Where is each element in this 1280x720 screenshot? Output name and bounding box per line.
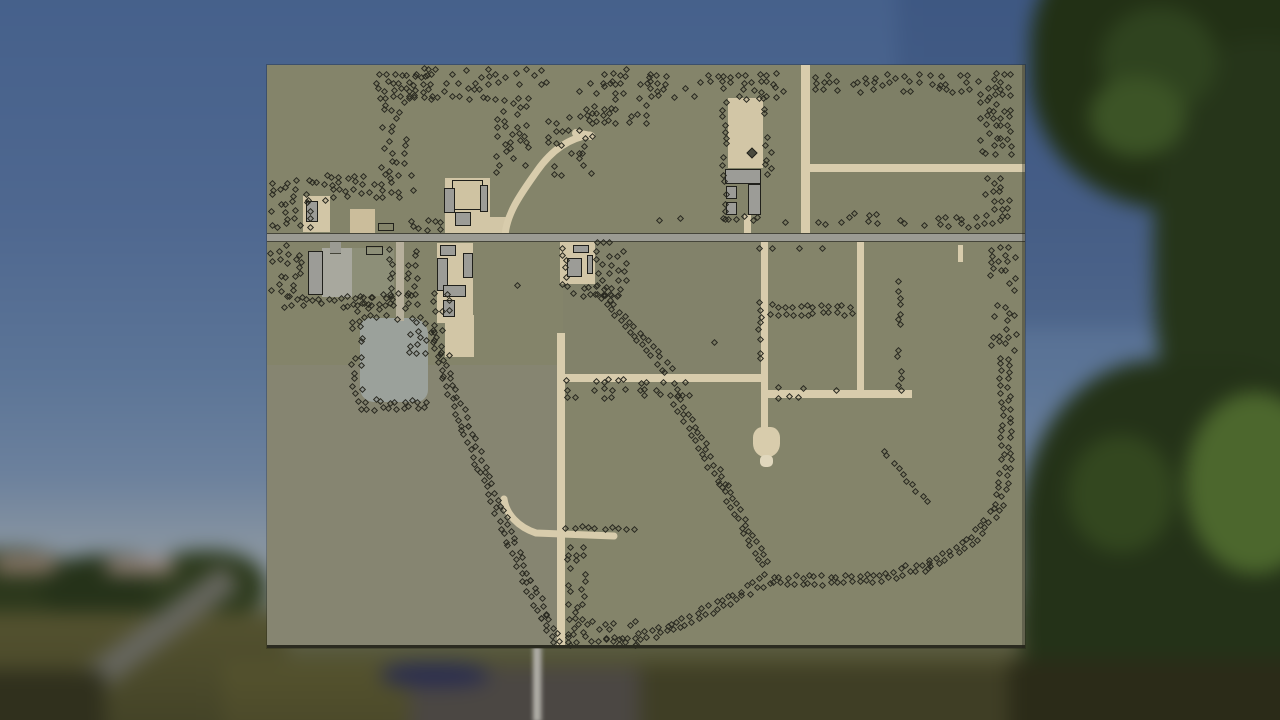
tree-marker (740, 86, 747, 93)
tree-marker (393, 159, 400, 166)
tree-marker (738, 525, 745, 532)
tree-marker (566, 616, 573, 623)
tree-marker (902, 562, 909, 569)
building (587, 255, 593, 274)
tree-marker (643, 102, 650, 109)
tree-marker (603, 636, 610, 643)
tree-marker (484, 95, 491, 102)
tree-marker (421, 94, 428, 101)
tree-marker (344, 293, 351, 300)
tree-marker (414, 275, 421, 282)
tree-marker (344, 193, 351, 200)
tree-marker (623, 66, 630, 73)
tree-marker (306, 208, 313, 215)
game-map-panel[interactable] (267, 65, 1025, 648)
tree-marker (575, 127, 582, 134)
tree-marker (671, 379, 678, 386)
tree-marker (413, 319, 420, 326)
tree-marker (822, 220, 829, 227)
tree-marker (945, 223, 952, 230)
farm-yard (350, 209, 375, 234)
tree-marker (387, 400, 394, 407)
tree-marker (866, 211, 873, 218)
tree-marker (567, 544, 574, 551)
tree-marker (678, 615, 685, 622)
tree-marker (403, 85, 410, 92)
tree-marker (898, 368, 905, 375)
tree-marker (988, 259, 995, 266)
tree-marker (593, 283, 600, 290)
tree-marker (1006, 197, 1013, 204)
tree-marker (647, 352, 654, 359)
tree-marker (750, 217, 757, 224)
tree-marker (679, 392, 686, 399)
tree-marker (511, 535, 518, 542)
tree-marker (348, 383, 355, 390)
tree-marker (488, 480, 495, 487)
tree-marker (949, 89, 956, 96)
tree-marker (637, 330, 644, 337)
tree-marker (799, 581, 806, 588)
tree-marker (322, 197, 329, 204)
tree-marker (330, 194, 337, 201)
tree-marker (382, 302, 389, 309)
tree-marker (429, 93, 436, 100)
tree-marker (777, 579, 784, 586)
tree-marker (1005, 280, 1012, 287)
tree-marker (565, 552, 572, 559)
tree-marker (641, 385, 648, 392)
tree-marker (494, 133, 501, 140)
tree-marker (821, 79, 828, 86)
tree-marker (348, 361, 355, 368)
tree-marker (919, 562, 926, 569)
tree-marker (612, 119, 619, 126)
tree-marker (480, 94, 487, 101)
tree-marker (851, 210, 858, 217)
tree-marker (469, 431, 476, 438)
tree-marker (818, 572, 825, 579)
tree-marker (387, 175, 394, 182)
tree-marker (660, 86, 667, 93)
tree-marker (550, 625, 557, 632)
tree-marker (480, 476, 487, 483)
tree-marker (591, 386, 598, 393)
tree-marker (758, 89, 765, 96)
tree-marker (406, 79, 413, 86)
tree-marker (912, 488, 919, 495)
tree-marker (1003, 317, 1010, 324)
tree-marker (293, 177, 300, 184)
tree-marker (611, 634, 618, 641)
tree-marker (1005, 396, 1012, 403)
tree-marker (909, 481, 916, 488)
tree-marker (644, 80, 651, 87)
building (308, 251, 323, 295)
tree-marker (421, 65, 428, 72)
tree-marker (356, 318, 363, 325)
tree-marker (735, 72, 742, 79)
tree-marker (772, 84, 779, 91)
tree-marker (654, 361, 661, 368)
tree-marker (358, 354, 365, 361)
tree-marker (695, 615, 702, 622)
tree-marker (979, 529, 986, 536)
building (452, 180, 483, 210)
tree-marker (825, 72, 832, 79)
tree-marker (743, 96, 750, 103)
tree-marker (655, 348, 662, 355)
tree-marker (986, 107, 993, 114)
tree-marker (607, 290, 614, 297)
tree-marker (994, 135, 1001, 142)
tree-marker (620, 376, 627, 383)
tree-marker (990, 108, 997, 115)
tree-marker (380, 291, 387, 298)
tree-marker (632, 618, 639, 625)
tree-marker (953, 544, 960, 551)
building (726, 186, 737, 199)
tree-marker (593, 248, 600, 255)
farm-yard (445, 315, 474, 357)
field-road (857, 241, 864, 395)
tree-marker (879, 82, 886, 89)
tree-marker (997, 79, 1004, 86)
tree-marker (455, 80, 462, 87)
tree-marker (278, 287, 285, 294)
tree-marker (366, 189, 373, 196)
building (437, 258, 448, 291)
tree-marker (1007, 107, 1014, 114)
tree-marker (700, 455, 707, 462)
tree-marker (989, 220, 996, 227)
tree-marker (580, 161, 587, 168)
farm-yard (728, 98, 763, 168)
tree-marker (421, 320, 428, 327)
tree-marker (565, 601, 572, 608)
tree-marker (705, 72, 712, 79)
tree-marker (373, 396, 380, 403)
tree-marker (361, 314, 368, 321)
tree-marker (722, 488, 729, 495)
tree-marker (408, 218, 415, 225)
tree-marker (511, 539, 518, 546)
tree-marker (1006, 369, 1013, 376)
tree-marker (580, 544, 587, 551)
tree-marker (437, 349, 444, 356)
tree-marker (457, 400, 464, 407)
tree-marker (378, 187, 385, 194)
tree-marker (714, 606, 721, 613)
tree-marker (486, 473, 493, 480)
tree-marker (478, 457, 485, 464)
tree-marker (591, 525, 598, 532)
tree-marker (340, 304, 347, 311)
tree-marker (733, 596, 740, 603)
tree-marker (756, 299, 763, 306)
tree-marker (293, 256, 300, 263)
tree-marker (421, 350, 428, 357)
tree-marker (485, 491, 492, 498)
tree-marker (916, 79, 923, 86)
tree-marker (523, 588, 530, 595)
tree-marker (270, 187, 277, 194)
tree-marker (451, 411, 458, 418)
tree-marker (661, 369, 668, 376)
tree-marker (684, 411, 691, 418)
tree-marker (655, 92, 662, 99)
tree-marker (502, 123, 509, 130)
tree-marker (915, 71, 922, 78)
tree-marker (600, 80, 607, 87)
tree-marker (906, 78, 913, 85)
tree-marker (977, 115, 984, 122)
tree-marker (648, 93, 655, 100)
tree-marker (388, 158, 395, 165)
tree-marker (528, 593, 535, 600)
tree-marker (292, 186, 299, 193)
tree-marker (723, 99, 730, 106)
tree-marker (358, 362, 365, 369)
tree-marker (376, 71, 383, 78)
tree-marker (405, 262, 412, 269)
tree-marker (752, 550, 759, 557)
tree-marker (815, 219, 822, 226)
tree-marker (539, 595, 546, 602)
tree-marker (578, 586, 585, 593)
tree-marker (943, 86, 950, 93)
tree-marker (387, 291, 394, 298)
tree-marker (292, 273, 299, 280)
tree-marker (349, 319, 356, 326)
tree-marker (405, 290, 412, 297)
tree-marker (707, 453, 714, 460)
tree-marker (413, 71, 420, 78)
tree-marker (723, 135, 730, 142)
tree-marker (388, 285, 395, 292)
tree-marker (947, 552, 954, 559)
tree-marker (990, 188, 997, 195)
tree-marker (775, 395, 782, 402)
tree-marker (611, 311, 618, 318)
tree-marker (579, 616, 586, 623)
tree-marker (599, 292, 606, 299)
tree-marker (1006, 310, 1013, 317)
tree-marker (615, 267, 622, 274)
tree-marker (773, 70, 780, 77)
tree-marker (409, 81, 416, 88)
tree-marker (443, 80, 450, 87)
tree-marker (832, 574, 839, 581)
tree-marker (1007, 405, 1014, 412)
tree-marker (373, 194, 380, 201)
tree-marker (433, 333, 440, 340)
tree-marker (757, 78, 764, 85)
tree-marker (594, 239, 601, 246)
tree-marker (745, 537, 752, 544)
tree-marker (309, 297, 316, 304)
tree-marker (363, 406, 370, 413)
tree-marker (806, 572, 813, 579)
tree-marker (417, 313, 424, 320)
tree-marker (707, 78, 714, 85)
tree-marker (389, 123, 396, 130)
tree-marker (402, 398, 409, 405)
tree-marker (282, 209, 289, 216)
tree-marker (387, 107, 394, 114)
tree-marker (834, 87, 841, 94)
tree-marker (727, 601, 734, 608)
tree-marker (393, 115, 400, 122)
tree-marker (484, 483, 491, 490)
tree-marker (897, 387, 904, 394)
field-road (761, 241, 768, 429)
tree-marker (593, 110, 600, 117)
tree-marker (519, 578, 526, 585)
tree-marker (572, 615, 579, 622)
tree-marker (575, 155, 582, 162)
tree-marker (559, 128, 566, 135)
tree-marker (863, 80, 870, 87)
tree-marker (647, 78, 654, 85)
tree-marker (885, 574, 892, 581)
tree-marker (432, 218, 439, 225)
building (440, 245, 456, 256)
building (455, 212, 471, 226)
tree-marker (500, 108, 507, 115)
tree-marker (554, 630, 561, 637)
bg-trees-right-light (1089, 76, 1185, 156)
tree-marker (545, 615, 552, 622)
tree-marker (653, 387, 660, 394)
tree-marker (593, 89, 600, 96)
tree-marker (381, 144, 388, 151)
tree-marker (728, 592, 735, 599)
tree-marker (608, 105, 615, 112)
tree-marker (567, 588, 574, 595)
tree-marker (282, 184, 289, 191)
tree-marker (924, 498, 931, 505)
tree-marker (538, 615, 545, 622)
tree-marker (602, 621, 609, 628)
tree-marker (381, 106, 388, 113)
tree-marker (641, 628, 648, 635)
tree-marker (388, 128, 395, 135)
tree-marker (540, 603, 547, 610)
building (726, 202, 737, 215)
tree-marker (984, 97, 991, 104)
tree-marker (804, 580, 811, 587)
tree-marker (848, 573, 855, 580)
tree-marker (871, 79, 878, 86)
tree-marker (680, 411, 687, 418)
tree-marker (607, 297, 614, 304)
tree-marker (389, 296, 396, 303)
tree-marker (432, 66, 439, 73)
tree-marker (716, 480, 723, 487)
tree-marker (895, 287, 902, 294)
tree-marker (484, 65, 491, 72)
tree-marker (722, 201, 729, 208)
tree-marker (942, 81, 949, 88)
tree-marker (989, 265, 996, 272)
tree-marker (359, 300, 366, 307)
tree-marker (645, 337, 652, 344)
tree-marker (689, 416, 696, 423)
tree-marker (654, 88, 661, 95)
tree-marker (556, 638, 563, 645)
tree-marker (365, 305, 372, 312)
tree-marker (864, 218, 871, 225)
tree-marker (296, 252, 303, 259)
tree-marker (401, 159, 408, 166)
tree-marker (796, 245, 803, 252)
tree-marker (294, 296, 301, 303)
tree-marker (268, 208, 275, 215)
tree-marker (417, 334, 424, 341)
tree-marker (599, 261, 606, 268)
tree-marker (472, 435, 479, 442)
tree-marker (761, 106, 768, 113)
field-road (744, 215, 751, 242)
tree-marker (876, 572, 883, 579)
tree-marker (1007, 92, 1014, 99)
tree-marker (756, 575, 763, 582)
tree-marker (580, 629, 587, 636)
tree-marker (601, 83, 608, 90)
tree-marker (985, 519, 992, 526)
tree-marker (1006, 113, 1013, 120)
tree-marker (994, 258, 1001, 265)
tree-marker (926, 557, 933, 564)
tree-marker (757, 319, 764, 326)
tree-marker (286, 293, 293, 300)
tree-marker (996, 333, 1003, 340)
tree-marker (982, 191, 989, 198)
tree-marker (998, 198, 1005, 205)
tree-marker (497, 503, 504, 510)
tree-marker (681, 622, 688, 629)
tree-marker (421, 404, 428, 411)
tree-marker (1011, 312, 1018, 319)
tree-marker (834, 579, 841, 586)
tree-marker (921, 222, 928, 229)
tree-marker (1005, 375, 1012, 382)
tree-marker (507, 139, 514, 146)
tree-marker (703, 440, 710, 447)
tree-marker (996, 470, 1003, 477)
tree-marker (284, 260, 291, 267)
tree-marker (825, 309, 832, 316)
tree-marker (733, 500, 740, 507)
tree-marker (993, 69, 1000, 76)
tree-marker (997, 115, 1004, 122)
tree-marker (812, 74, 819, 81)
tree-marker (349, 185, 356, 192)
tree-marker (567, 642, 574, 649)
tree-marker (994, 302, 1001, 309)
bg-horizon-building (0, 556, 57, 573)
tree-marker (675, 392, 682, 399)
tree-marker (368, 302, 375, 309)
tree-marker (997, 399, 1004, 406)
tree-marker (593, 256, 600, 263)
tree-marker (997, 217, 1004, 224)
tree-marker (1007, 414, 1014, 421)
tree-marker (901, 73, 908, 80)
tree-marker (280, 304, 287, 311)
tree-marker (444, 291, 451, 298)
